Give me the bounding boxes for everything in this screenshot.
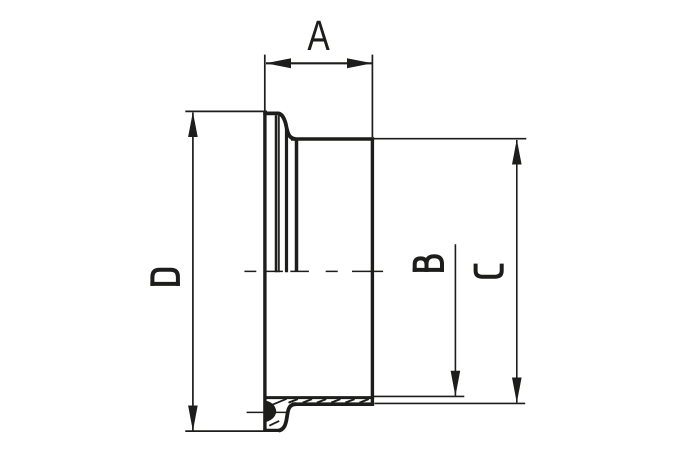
svg-text:A: A — [307, 12, 330, 60]
